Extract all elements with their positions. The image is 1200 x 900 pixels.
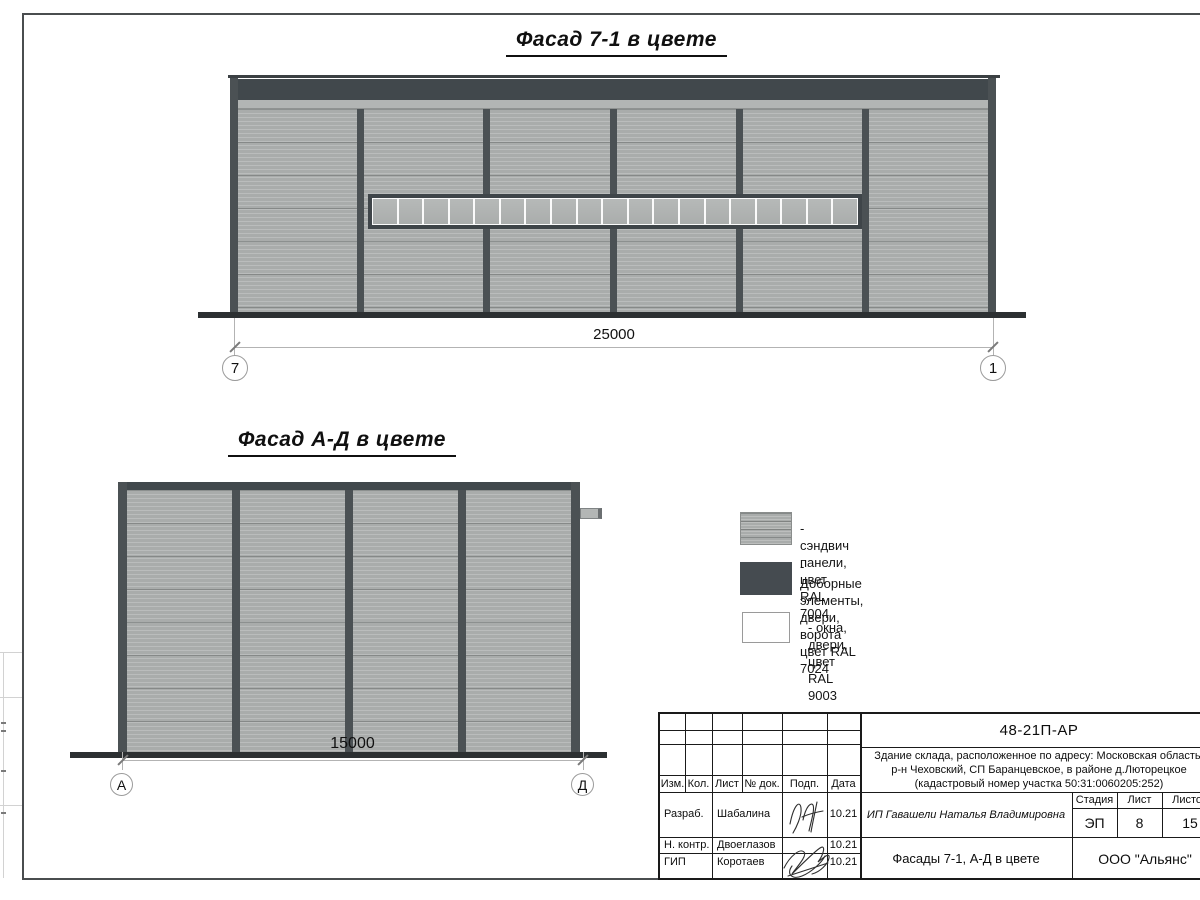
- tb-sheet-label: Лист: [1117, 792, 1162, 808]
- pane: [731, 199, 755, 224]
- tb-col-izm: Изм.: [660, 775, 685, 792]
- pane: [654, 199, 678, 224]
- pane: [833, 199, 857, 224]
- tb-line: [660, 744, 860, 745]
- tb-name-korotaev: Коротаев: [717, 854, 781, 870]
- legend-swatch-ral9003: [742, 612, 790, 643]
- pane: [782, 199, 806, 224]
- facade-ad-top-frame: [118, 482, 580, 490]
- dimension-value: 25000: [234, 326, 994, 343]
- ribbon-window-band: [368, 194, 862, 229]
- tb-doc-number: 48-21П-АР: [860, 714, 1200, 747]
- tb-col-kol: Кол.: [685, 775, 712, 792]
- title-block: Изм. Кол. Лист № док. Подп. Дата Разраб.…: [658, 712, 1200, 880]
- facade-ad-title: Фасад А-Д в цвете: [228, 428, 456, 457]
- bay: [869, 109, 988, 312]
- pane: [450, 199, 474, 224]
- pane: [552, 199, 576, 224]
- pane: [526, 199, 550, 224]
- legend-label-ral9003: - окна, двери, цвет RAL 9003: [808, 619, 848, 704]
- margin-mark: [1, 812, 6, 814]
- tb-role-gip: ГИП: [664, 854, 712, 870]
- pane: [603, 199, 627, 224]
- pane: [373, 199, 397, 224]
- bay: [127, 490, 240, 755]
- tb-col-data: Дата: [827, 775, 860, 792]
- axis-marker-d: Д: [571, 773, 594, 796]
- tb-col-list: Лист: [712, 775, 742, 792]
- tb-sheets-label: Листов: [1162, 792, 1200, 808]
- gutter-outlet: [580, 508, 602, 519]
- tb-col-ndok: № док.: [742, 775, 782, 792]
- bay: [353, 490, 466, 755]
- corner-pillar-right: [988, 78, 996, 312]
- pane: [706, 199, 730, 224]
- tb-role-nkontr: Н. контр.: [664, 837, 712, 853]
- tb-stage-label: Стадия: [1072, 792, 1117, 808]
- tb-line: [660, 730, 860, 731]
- margin-mark: [1, 722, 6, 724]
- corner-pillar-left: [230, 78, 238, 312]
- facade-ad-pillar-right: [571, 482, 580, 755]
- pane: [424, 199, 448, 224]
- pane: [757, 199, 781, 224]
- pane: [475, 199, 499, 224]
- tb-name-shabalina: Шабалина: [717, 804, 781, 824]
- bay: [238, 109, 364, 312]
- bay: [240, 490, 353, 755]
- pane: [680, 199, 704, 224]
- tb-sheet-title: Фасады 7-1, А-Д в цвете: [860, 837, 1072, 880]
- tb-project-description: Здание склада, расположенное по адресу: …: [860, 747, 1200, 792]
- tb-company: ООО "Альянс": [1072, 837, 1200, 880]
- dimension-value: 15000: [122, 735, 583, 753]
- pane: [399, 199, 423, 224]
- axis-marker-1: 1: [980, 355, 1006, 381]
- parapet-band: [233, 79, 993, 100]
- tb-sheet-value: 8: [1117, 808, 1162, 837]
- axis-marker-7: 7: [222, 355, 248, 381]
- pane: [629, 199, 653, 224]
- facade-ad-wall: [127, 490, 571, 755]
- margin-divider-vertical: [3, 652, 4, 878]
- facade-7-1-base: [198, 312, 1026, 318]
- signature-korotaev: [780, 836, 832, 880]
- legend-swatch-ral7024: [740, 562, 792, 595]
- bay: [466, 490, 571, 755]
- tb-client: ИП Гавашели Наталья Владимировна: [860, 792, 1072, 837]
- legend-swatch-ral7004: [740, 512, 792, 545]
- tb-sheets-value: 15: [1162, 808, 1200, 837]
- window-panes: [372, 198, 858, 225]
- signature-shabalina: [784, 796, 826, 836]
- frame-top-border: [22, 13, 1200, 15]
- drawing-sheet: { "drawing": { "facade_71": { "title": "…: [0, 0, 1200, 900]
- dimension-line: [122, 760, 583, 761]
- dimension-line: [234, 347, 994, 348]
- frame-left-border: [22, 13, 24, 880]
- facade-7-1-title: Фасад 7-1 в цвете: [506, 28, 727, 57]
- margin-mark: [1, 730, 6, 732]
- roof-edge-line: [228, 75, 1000, 78]
- tb-date: 10.21: [827, 804, 860, 824]
- pane: [501, 199, 525, 224]
- axis-marker-a: А: [110, 773, 133, 796]
- tb-name-dvoeglazov: Двоеглазов: [717, 837, 781, 853]
- pane: [578, 199, 602, 224]
- tb-col-podp: Подп.: [782, 775, 827, 792]
- parapet-light-strip: [233, 100, 993, 109]
- facade-ad-pillar-left: [118, 482, 127, 755]
- tb-role-razrab: Разраб.: [664, 804, 712, 824]
- tb-stage-value: ЭП: [1072, 808, 1117, 837]
- pane: [808, 199, 832, 224]
- margin-mark: [1, 770, 6, 772]
